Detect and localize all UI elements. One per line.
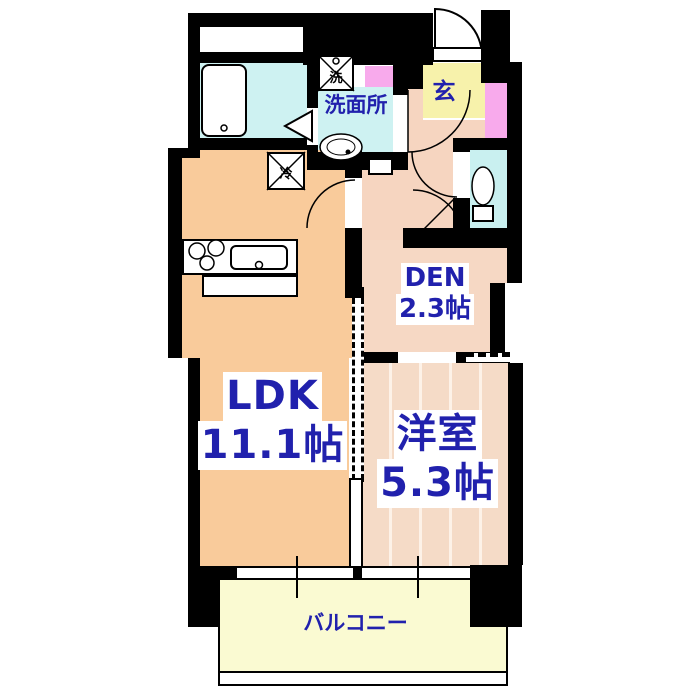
den-name: DEN (401, 263, 468, 294)
washroom-name: 洗面所 (325, 93, 388, 117)
den-size: 2.3帖 (396, 294, 474, 325)
basin-faucet (346, 150, 351, 155)
western-room-size: 5.3帖 (377, 459, 498, 508)
wash-basin-bowl (327, 139, 355, 155)
entry-door-leaf (433, 48, 482, 61)
washer-drain (333, 58, 339, 64)
bathtub-drain (221, 125, 227, 131)
stove-burner (189, 243, 205, 259)
floorplan-canvas: 洗 冷 (0, 0, 700, 700)
stove-burner (200, 256, 214, 270)
toilet-bowl (472, 167, 494, 205)
washroom-label: 洗面所 (313, 93, 399, 117)
ldk-size: 11.1帖 (198, 421, 348, 470)
balcony-label: バルコニー (293, 611, 418, 635)
ldk-name: LDK (223, 372, 322, 421)
entrance-name: 玄 (433, 80, 456, 104)
ldk-door-arc (307, 180, 355, 228)
den-door-leaf (413, 198, 455, 240)
entrance-label: 玄 (429, 80, 459, 104)
stove-burner (208, 240, 224, 256)
western-room-label: 洋室 5.3帖 (365, 410, 510, 508)
ldk-label: LDK 11.1帖 (190, 372, 355, 470)
balcony-name: バルコニー (303, 611, 408, 635)
den-label: DEN 2.3帖 (370, 263, 500, 325)
sink-faucet (256, 262, 263, 269)
western-room-name: 洋室 (394, 410, 482, 459)
bath-folding-door (285, 111, 312, 141)
